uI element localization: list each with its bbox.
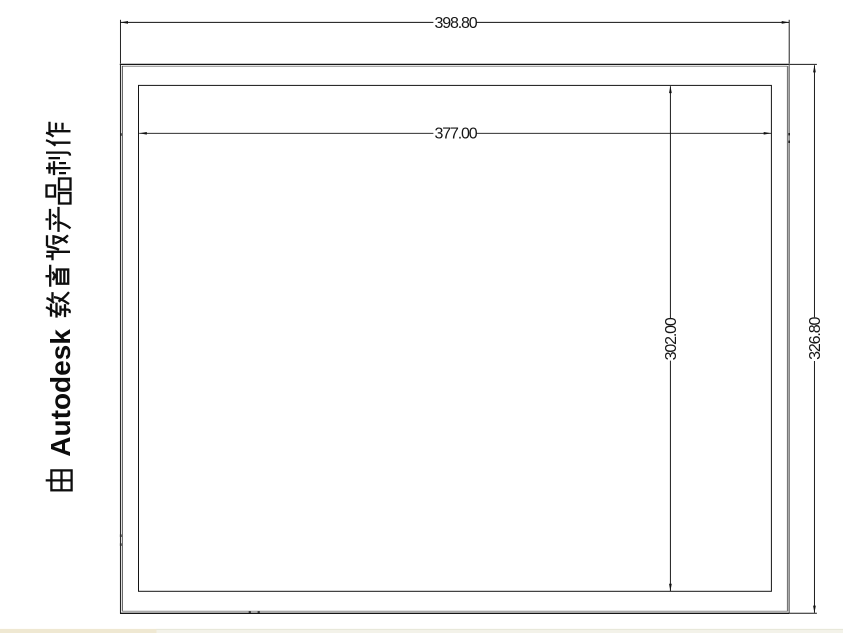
svg-text:398.80: 398.80 <box>434 15 477 32</box>
svg-text:377.00: 377.00 <box>434 126 477 143</box>
svg-text:302.00: 302.00 <box>663 317 680 360</box>
svg-text:Autodesk: Autodesk <box>45 329 76 457</box>
svg-text:326.80: 326.80 <box>807 317 824 360</box>
